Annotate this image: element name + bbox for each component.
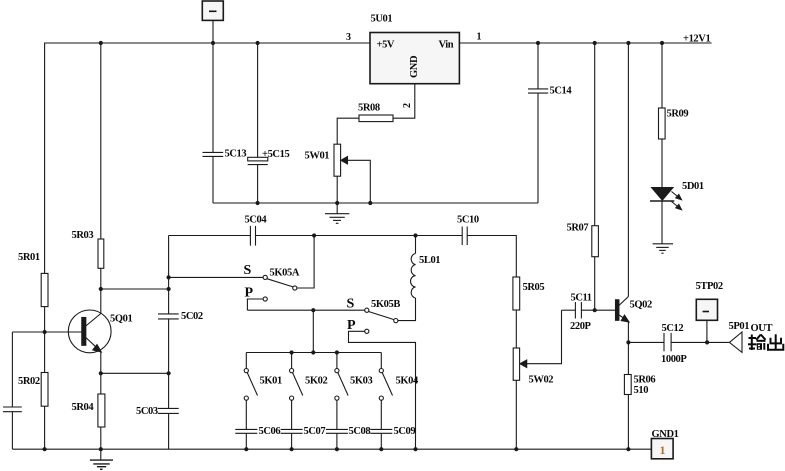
svg-text:5L01: 5L01 (419, 255, 440, 266)
svg-text:5U01: 5U01 (371, 14, 393, 25)
svg-text:2: 2 (402, 103, 413, 108)
svg-text:5K05B: 5K05B (371, 299, 400, 310)
svg-text:5C12: 5C12 (662, 323, 684, 334)
svg-text:5C03: 5C03 (136, 406, 158, 417)
svg-text:+5C15: +5C15 (262, 149, 289, 160)
svg-text:5R07: 5R07 (567, 223, 589, 234)
svg-text:5K05A: 5K05A (270, 268, 300, 279)
svg-text:5R01: 5R01 (18, 252, 40, 263)
svg-text:OUT: OUT (751, 323, 773, 334)
svg-text:5C02: 5C02 (181, 311, 203, 322)
svg-text:GND1: GND1 (652, 429, 679, 440)
svg-text:5C06: 5C06 (259, 426, 281, 437)
svg-text:1: 1 (477, 32, 482, 43)
svg-text:5R03: 5R03 (72, 230, 94, 241)
svg-text:5R04: 5R04 (72, 402, 95, 413)
svg-text:P: P (245, 286, 254, 301)
svg-text:5C13: 5C13 (225, 149, 247, 160)
svg-text:5K01: 5K01 (260, 376, 282, 387)
svg-text:P: P (347, 318, 356, 333)
svg-text:GND: GND (409, 55, 420, 78)
svg-text:5R06: 5R06 (634, 375, 656, 386)
svg-text:5C10: 5C10 (457, 215, 479, 226)
svg-text:S: S (244, 263, 252, 278)
svg-text:5C04: 5C04 (245, 215, 268, 226)
svg-text:510: 510 (634, 385, 649, 396)
svg-text:5R08: 5R08 (358, 103, 380, 114)
svg-text:5C09: 5C09 (394, 426, 416, 437)
svg-text:5C07: 5C07 (304, 426, 326, 437)
svg-text:+12V1: +12V1 (683, 34, 710, 45)
svg-text:5TP02: 5TP02 (696, 281, 723, 292)
svg-text:5Q02: 5Q02 (630, 300, 652, 311)
svg-text:Vin: Vin (439, 40, 454, 51)
svg-text:S: S (347, 297, 355, 312)
svg-text:5W01: 5W01 (305, 151, 330, 162)
svg-text:220P: 220P (570, 321, 592, 332)
svg-text:5K03: 5K03 (350, 376, 372, 387)
svg-text:5C14: 5C14 (550, 86, 573, 97)
svg-text:5P01: 5P01 (729, 321, 750, 332)
svg-text:1000P: 1000P (661, 354, 687, 365)
svg-text:5R09: 5R09 (667, 109, 689, 120)
svg-text:5R05: 5R05 (523, 282, 545, 293)
svg-text:5K04: 5K04 (396, 376, 419, 387)
svg-text:3: 3 (346, 32, 351, 43)
svg-text:5Q01: 5Q01 (110, 314, 132, 325)
svg-text:5C08: 5C08 (349, 426, 371, 437)
svg-text:+5V: +5V (377, 40, 395, 51)
svg-text:1: 1 (660, 443, 666, 457)
svg-text:5R02: 5R02 (18, 376, 40, 387)
svg-text:5K02: 5K02 (305, 376, 327, 387)
svg-text:5D01: 5D01 (682, 181, 704, 192)
svg-text:5C11: 5C11 (571, 293, 592, 304)
svg-text:5W02: 5W02 (529, 375, 554, 386)
